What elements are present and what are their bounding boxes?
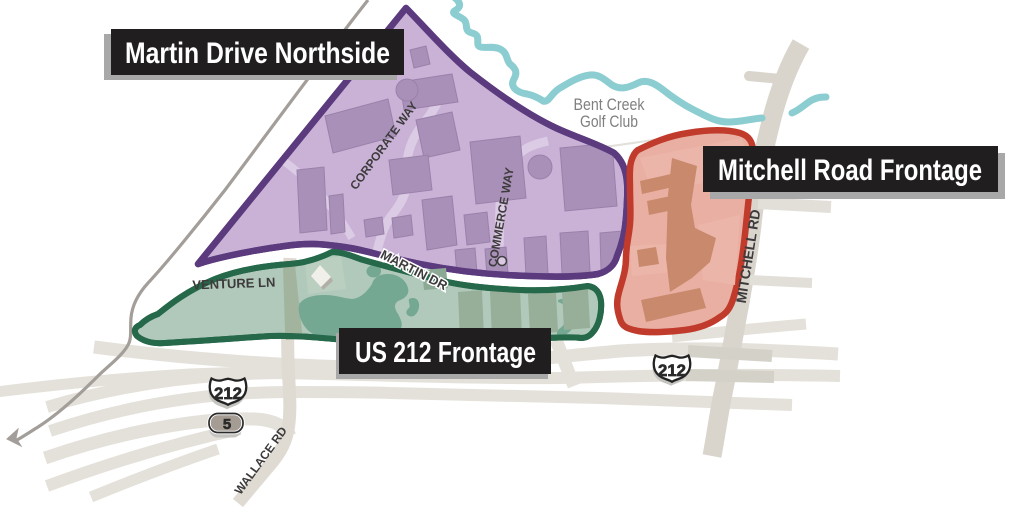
svg-text:Martin Drive Northside: Martin Drive Northside: [125, 37, 390, 70]
svg-text:212: 212: [658, 361, 686, 380]
svg-text:US 212 Frontage: US 212 Frontage: [355, 337, 536, 369]
svg-text:Mitchell Road Frontage: Mitchell Road Frontage: [718, 154, 982, 187]
svg-text:212: 212: [214, 384, 242, 403]
svg-text:VENTURE LN: VENTURE LN: [192, 275, 276, 293]
svg-text:5: 5: [223, 416, 231, 433]
svg-text:Golf Club: Golf Club: [580, 112, 638, 131]
